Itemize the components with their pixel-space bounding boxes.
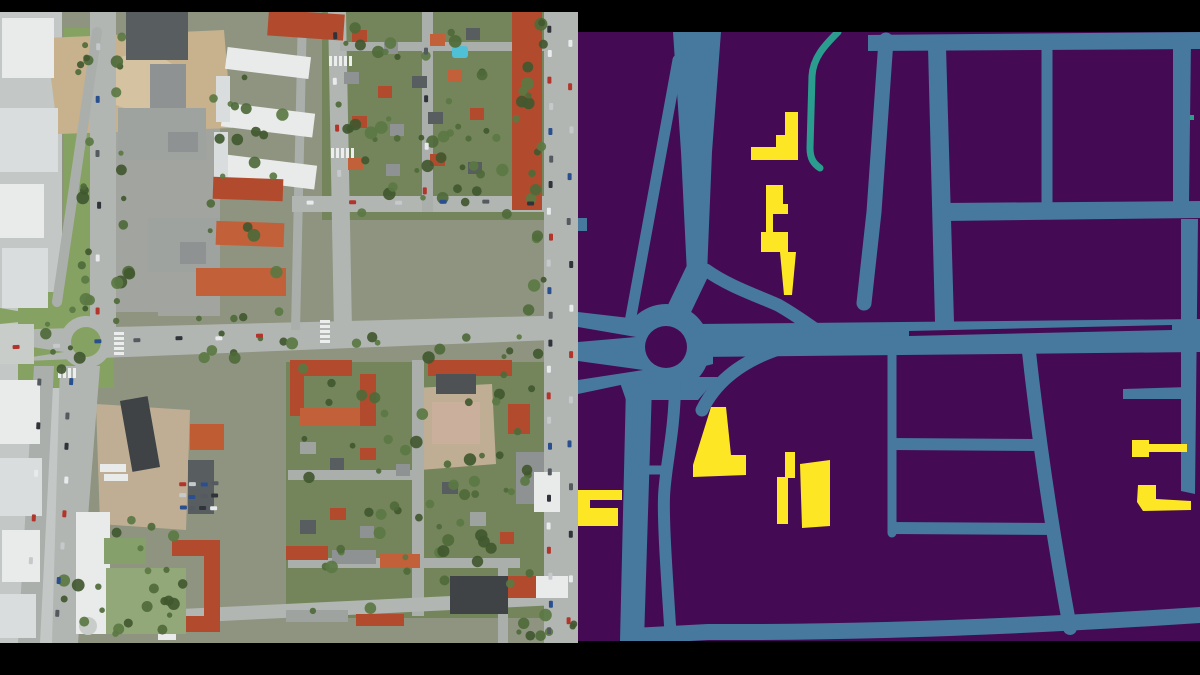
tree	[350, 443, 356, 449]
car	[547, 392, 551, 399]
car	[547, 77, 551, 84]
tree	[325, 399, 332, 406]
tree	[83, 55, 90, 62]
car	[569, 396, 573, 403]
charcoal-building	[450, 576, 508, 614]
house	[300, 520, 316, 534]
car	[69, 378, 73, 385]
tree	[449, 35, 462, 48]
tree	[229, 352, 241, 364]
tree	[74, 352, 86, 364]
orange-house	[190, 424, 224, 450]
tree	[325, 561, 338, 574]
car	[349, 200, 356, 204]
tree	[522, 465, 533, 476]
tree	[298, 363, 308, 373]
car	[62, 510, 66, 517]
tree	[215, 134, 225, 144]
van-row	[100, 464, 126, 472]
car	[547, 523, 551, 530]
road-stub-west	[578, 218, 587, 231]
red-row-south	[380, 554, 420, 568]
tree	[453, 184, 462, 193]
crosswalk-stripe	[68, 368, 71, 378]
van-row	[104, 474, 128, 481]
car	[568, 440, 572, 447]
white-building	[0, 108, 58, 172]
tree	[196, 316, 202, 322]
tree	[442, 534, 454, 546]
house	[470, 108, 484, 120]
car	[547, 547, 551, 554]
tree	[82, 42, 88, 48]
tree	[434, 344, 445, 355]
car	[568, 40, 572, 47]
car	[548, 573, 552, 580]
car	[64, 477, 68, 484]
watercourse-dot	[1190, 115, 1194, 120]
crosswalk-stripe	[336, 148, 339, 158]
tree	[456, 519, 464, 527]
car	[424, 95, 428, 102]
tree	[168, 598, 180, 610]
tree	[462, 333, 471, 342]
crosswalk-stripe	[320, 340, 330, 343]
car	[570, 126, 574, 133]
tree	[419, 135, 425, 141]
car	[64, 443, 68, 450]
car	[547, 208, 551, 215]
tree	[477, 70, 488, 81]
tree	[522, 62, 533, 73]
car	[179, 493, 186, 497]
car	[549, 156, 553, 163]
car	[549, 601, 553, 608]
car	[547, 287, 551, 294]
white-building-east	[534, 472, 560, 512]
tree	[111, 55, 123, 67]
segmentation-mask-panel	[578, 32, 1200, 641]
tree	[374, 527, 386, 539]
tree	[111, 87, 121, 97]
car	[96, 96, 100, 103]
aerial-photo-panel	[0, 12, 578, 643]
car	[547, 495, 551, 502]
car	[53, 344, 60, 348]
house	[330, 458, 344, 470]
crosswalk-stripe	[320, 330, 330, 333]
tree	[403, 568, 410, 575]
tree	[231, 102, 239, 110]
tree	[148, 523, 156, 531]
car	[201, 483, 208, 487]
roundabout-island	[645, 326, 687, 368]
tree	[538, 19, 545, 26]
car	[337, 170, 341, 177]
car	[569, 575, 573, 582]
tree	[124, 268, 136, 280]
tree	[116, 165, 127, 176]
crosswalk-stripe	[114, 342, 124, 345]
tree	[248, 229, 261, 242]
house	[330, 508, 346, 520]
car	[548, 443, 552, 450]
car	[256, 334, 263, 338]
tree	[436, 524, 442, 530]
dark-building-north	[126, 12, 188, 60]
road-main-east	[696, 319, 1200, 357]
tree	[95, 584, 101, 590]
tree	[476, 170, 485, 179]
car	[37, 379, 41, 386]
tree	[249, 157, 261, 169]
tree	[349, 22, 360, 33]
white-building	[0, 380, 40, 444]
tree	[219, 331, 225, 337]
building-edge-strips	[578, 490, 622, 526]
crosswalk-stripe	[114, 332, 124, 335]
tree	[390, 501, 400, 511]
tree	[460, 164, 466, 170]
tree	[492, 134, 500, 142]
tree	[528, 385, 535, 392]
institutional-building	[128, 164, 204, 214]
house	[430, 34, 445, 46]
car	[395, 201, 402, 205]
white-building	[0, 594, 36, 638]
dark-building-mid	[436, 374, 476, 394]
car	[36, 422, 40, 429]
crosswalk-stripe	[320, 335, 330, 338]
car	[60, 542, 64, 549]
tree	[230, 315, 237, 322]
tree	[68, 345, 73, 350]
car	[65, 412, 69, 419]
tree	[421, 160, 433, 172]
car	[96, 150, 100, 157]
car	[568, 173, 572, 180]
tree	[72, 579, 85, 592]
car	[96, 255, 100, 262]
tree	[533, 349, 543, 359]
car	[569, 261, 573, 268]
tree	[241, 103, 252, 114]
road-h-stub-east	[1123, 387, 1189, 399]
tree	[82, 306, 88, 312]
tree	[239, 313, 247, 321]
tree	[570, 623, 576, 629]
car	[335, 125, 339, 132]
tree	[386, 116, 391, 121]
tree	[242, 75, 248, 81]
crosswalk-stripe	[320, 325, 330, 328]
tree	[303, 472, 314, 483]
car	[333, 32, 337, 39]
tree	[352, 339, 361, 348]
car	[211, 494, 218, 498]
tree	[81, 276, 89, 284]
tree	[530, 184, 541, 195]
tree	[168, 530, 179, 541]
house	[344, 72, 359, 84]
tree	[118, 151, 123, 156]
tree	[479, 453, 485, 459]
car	[133, 338, 140, 342]
car	[212, 481, 219, 485]
crosswalk-stripe	[114, 352, 124, 355]
tree	[142, 601, 153, 612]
tree	[535, 630, 546, 641]
car	[175, 336, 182, 340]
car	[547, 366, 551, 373]
tree	[364, 508, 373, 517]
tree	[355, 40, 366, 51]
car	[440, 200, 447, 204]
tree	[80, 183, 87, 190]
car	[567, 617, 571, 624]
crosswalk-stripe	[344, 56, 347, 66]
tree	[472, 186, 482, 196]
tree	[455, 124, 461, 130]
roof-unit	[168, 132, 198, 152]
road-v4-upper	[1173, 41, 1191, 203]
letterbox-frame	[0, 0, 1200, 675]
tree	[385, 37, 397, 49]
house	[386, 164, 400, 176]
swimming-pool	[452, 46, 468, 58]
car	[549, 181, 553, 188]
tree	[376, 468, 381, 473]
white-building	[0, 324, 34, 364]
crosswalk-stripe	[351, 148, 354, 158]
tree	[145, 567, 152, 574]
aerial-photo-image	[0, 12, 578, 643]
car	[32, 514, 36, 521]
tree	[512, 115, 520, 123]
tree	[444, 460, 452, 468]
gray-building	[150, 64, 186, 108]
tree	[516, 629, 521, 634]
car	[549, 103, 553, 110]
tree	[415, 514, 423, 522]
tree	[75, 69, 81, 75]
tree	[69, 307, 76, 314]
car	[482, 200, 489, 204]
tree	[286, 337, 298, 349]
tree	[78, 261, 86, 269]
tree	[157, 625, 167, 635]
white-building	[0, 184, 44, 238]
tree	[369, 392, 380, 403]
tree	[127, 516, 136, 525]
car	[333, 78, 337, 85]
tree	[414, 168, 419, 173]
tree	[137, 545, 143, 551]
car	[97, 202, 101, 209]
tree	[539, 40, 548, 49]
tree	[446, 98, 452, 104]
row-south	[286, 610, 348, 622]
tree	[537, 142, 546, 151]
white-building	[2, 18, 54, 78]
tree	[343, 41, 348, 46]
tree	[472, 556, 483, 567]
car	[568, 83, 572, 90]
house	[390, 124, 404, 136]
car	[549, 312, 553, 319]
tree	[508, 488, 515, 495]
roof-unit	[180, 242, 206, 264]
crosswalk-stripe	[329, 56, 332, 66]
car	[569, 483, 573, 490]
tree	[469, 476, 480, 487]
tree	[528, 279, 540, 291]
tree	[381, 410, 389, 418]
tree	[121, 196, 126, 201]
tree	[471, 490, 479, 498]
street-v3	[412, 360, 424, 616]
tree	[394, 135, 401, 142]
tree	[465, 136, 471, 142]
tree	[523, 304, 534, 315]
white-building	[2, 530, 40, 582]
tree	[85, 295, 95, 305]
red-row	[213, 177, 284, 201]
car	[57, 577, 61, 584]
tree	[459, 489, 470, 500]
tree	[119, 220, 129, 230]
tree	[410, 436, 423, 449]
building-bar-right	[800, 460, 830, 528]
tree	[111, 277, 123, 289]
road-top	[868, 32, 1200, 51]
tree	[167, 612, 172, 617]
crosswalk-stripe	[331, 148, 334, 158]
tree	[448, 480, 459, 491]
car	[210, 506, 217, 510]
tree	[526, 93, 532, 99]
tree	[496, 164, 508, 176]
tree	[276, 108, 288, 120]
car	[548, 340, 552, 347]
car	[179, 482, 186, 486]
tree	[50, 349, 56, 355]
tree	[112, 631, 118, 637]
tree	[514, 428, 521, 435]
car	[547, 26, 551, 33]
car	[549, 234, 553, 241]
white-slab-south	[76, 512, 110, 634]
tree	[526, 631, 536, 641]
car	[307, 201, 314, 205]
car	[188, 495, 195, 499]
crosswalk-stripe	[114, 337, 124, 340]
tree	[208, 228, 213, 233]
tree	[357, 208, 366, 217]
tree	[361, 156, 369, 164]
tree	[500, 371, 507, 378]
car	[548, 128, 552, 135]
car	[569, 531, 573, 538]
tree	[178, 579, 188, 589]
road-h2	[891, 522, 1059, 535]
tree	[426, 500, 435, 509]
tree	[400, 445, 411, 456]
tree	[506, 347, 513, 354]
car	[424, 48, 428, 55]
tree	[502, 354, 507, 359]
car	[569, 305, 573, 312]
car	[13, 345, 20, 349]
tree	[327, 379, 335, 387]
tree	[310, 608, 316, 614]
car	[96, 43, 100, 50]
car	[29, 557, 33, 564]
tree	[376, 509, 387, 520]
tree	[402, 554, 408, 560]
tree	[496, 451, 504, 459]
house	[360, 448, 376, 460]
tree	[76, 191, 89, 204]
tree	[336, 545, 345, 554]
tree	[517, 334, 522, 339]
tree	[113, 318, 119, 324]
crosswalk-stripe	[334, 56, 337, 66]
car	[425, 143, 429, 150]
road-v4-lower	[1181, 219, 1198, 494]
house	[396, 464, 410, 476]
tree	[209, 94, 218, 103]
tree	[528, 170, 535, 177]
car	[96, 308, 100, 315]
tree	[532, 230, 543, 241]
tree	[469, 161, 479, 171]
road-h-mid	[944, 201, 1200, 221]
tree	[251, 127, 261, 137]
tree	[394, 54, 400, 60]
tree	[367, 332, 377, 342]
dark-building-sw	[188, 460, 214, 514]
car	[180, 506, 187, 510]
tree	[448, 29, 455, 36]
tree	[437, 545, 449, 557]
house	[360, 526, 374, 538]
car	[55, 610, 59, 617]
tree	[492, 397, 500, 405]
tree	[440, 575, 450, 585]
tree	[199, 352, 210, 363]
red-row-south	[286, 546, 328, 560]
house	[466, 28, 480, 40]
tree	[99, 607, 105, 613]
tree	[77, 61, 84, 68]
white-building	[0, 458, 42, 516]
car	[548, 50, 552, 57]
tree	[483, 128, 489, 134]
tree	[422, 351, 434, 363]
house	[412, 76, 427, 88]
car	[548, 468, 552, 475]
car	[527, 202, 534, 206]
slab-wing	[216, 76, 230, 122]
tree	[114, 298, 120, 304]
tree	[365, 126, 378, 139]
segmentation-mask-image	[578, 32, 1200, 641]
tree	[149, 584, 159, 594]
tree	[112, 528, 122, 538]
tree	[61, 596, 68, 603]
tree	[350, 119, 362, 131]
